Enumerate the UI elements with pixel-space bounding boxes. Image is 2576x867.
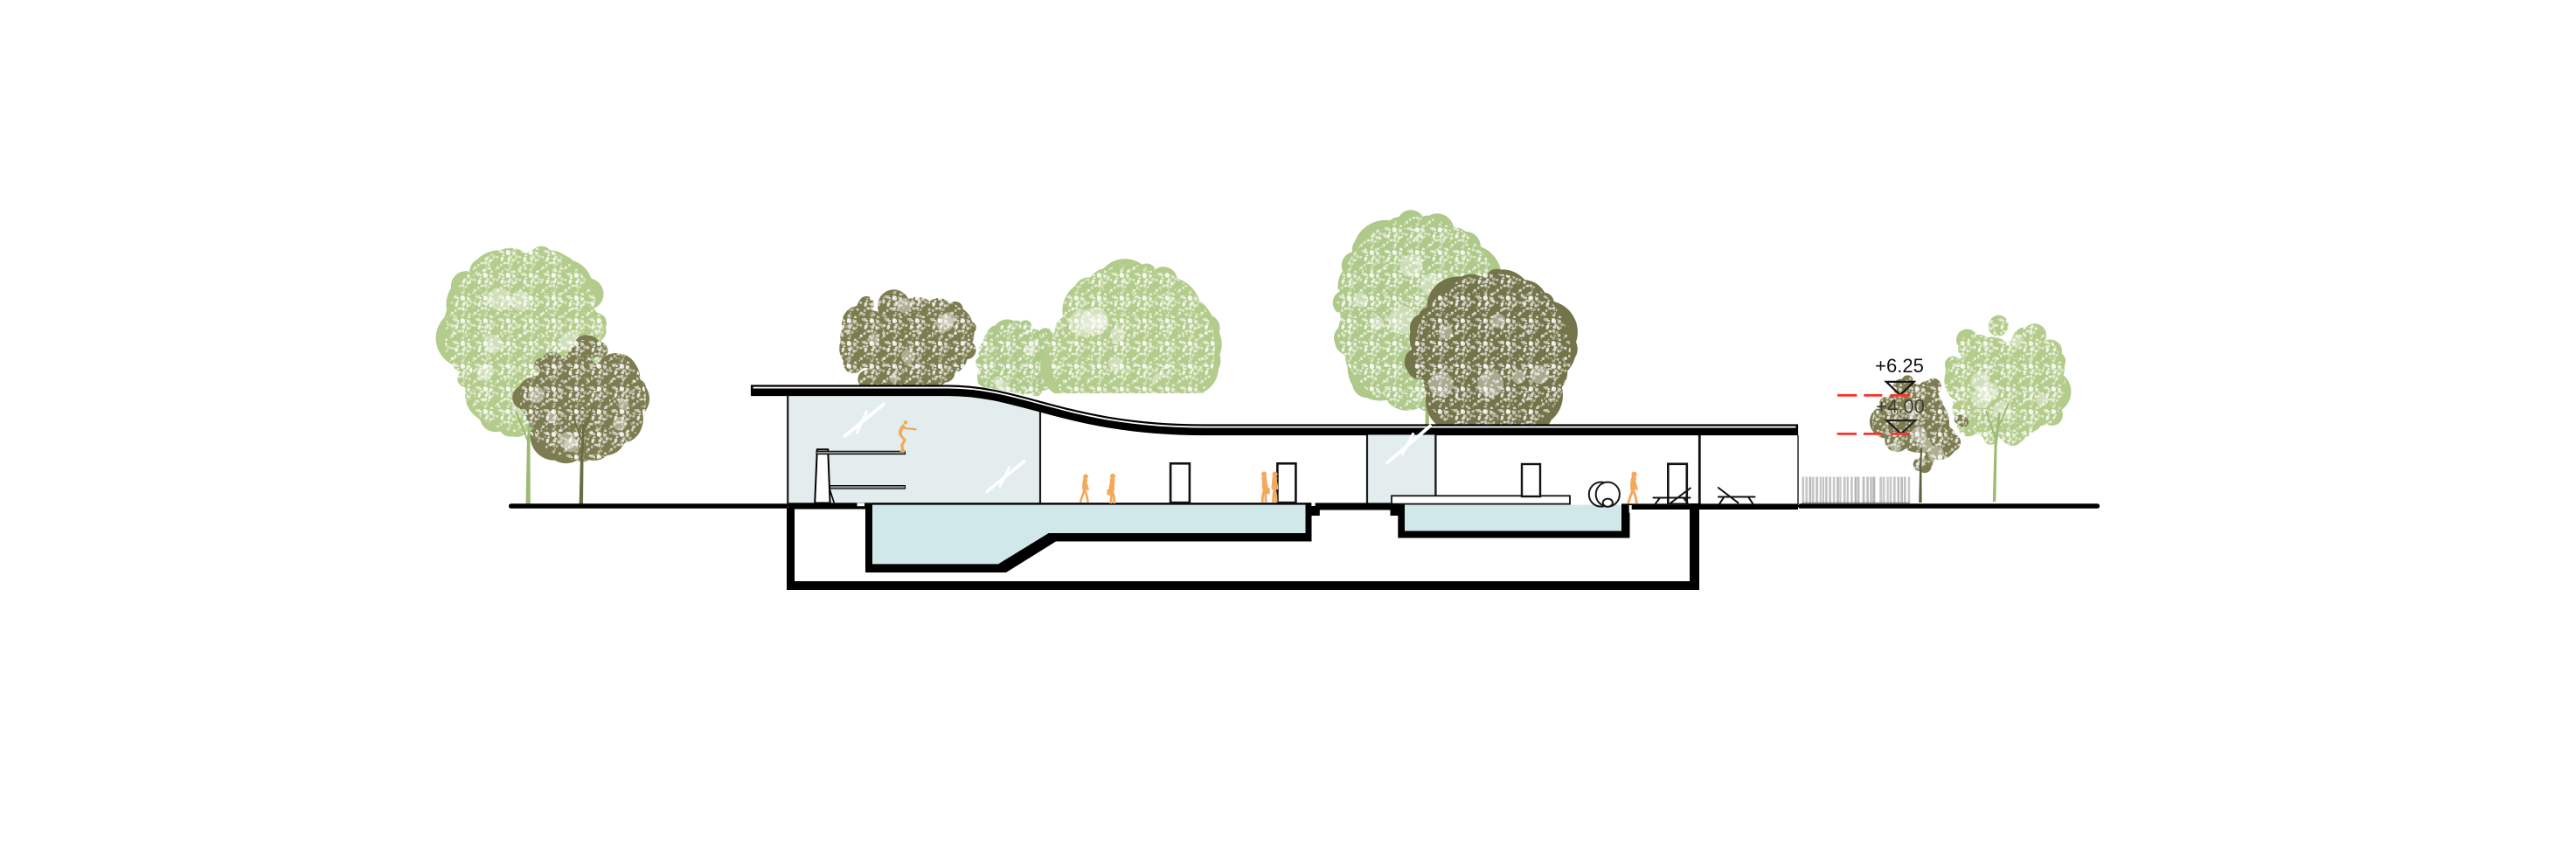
svg-text:+4.00: +4.00 [1876, 395, 1925, 417]
svg-text:+6.25: +6.25 [1875, 355, 1924, 377]
